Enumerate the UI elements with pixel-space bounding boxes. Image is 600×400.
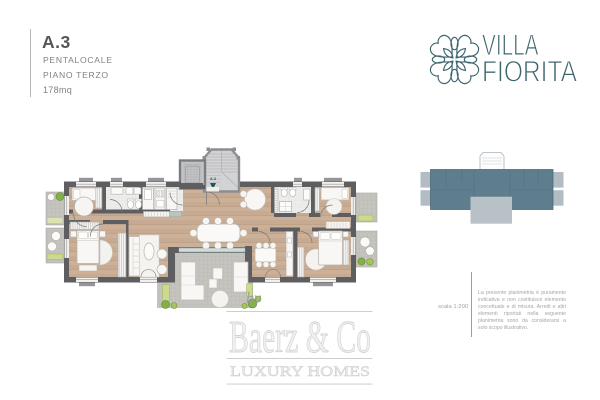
svg-text:A.3: A.3: [210, 176, 217, 181]
svg-text:LUXURY HOMES: LUXURY HOMES: [230, 364, 370, 380]
svg-text:by: by: [246, 290, 262, 307]
svg-text:FIORITA: FIORITA: [482, 56, 577, 89]
svg-text:Baerz & Co: Baerz & Co: [229, 311, 371, 362]
